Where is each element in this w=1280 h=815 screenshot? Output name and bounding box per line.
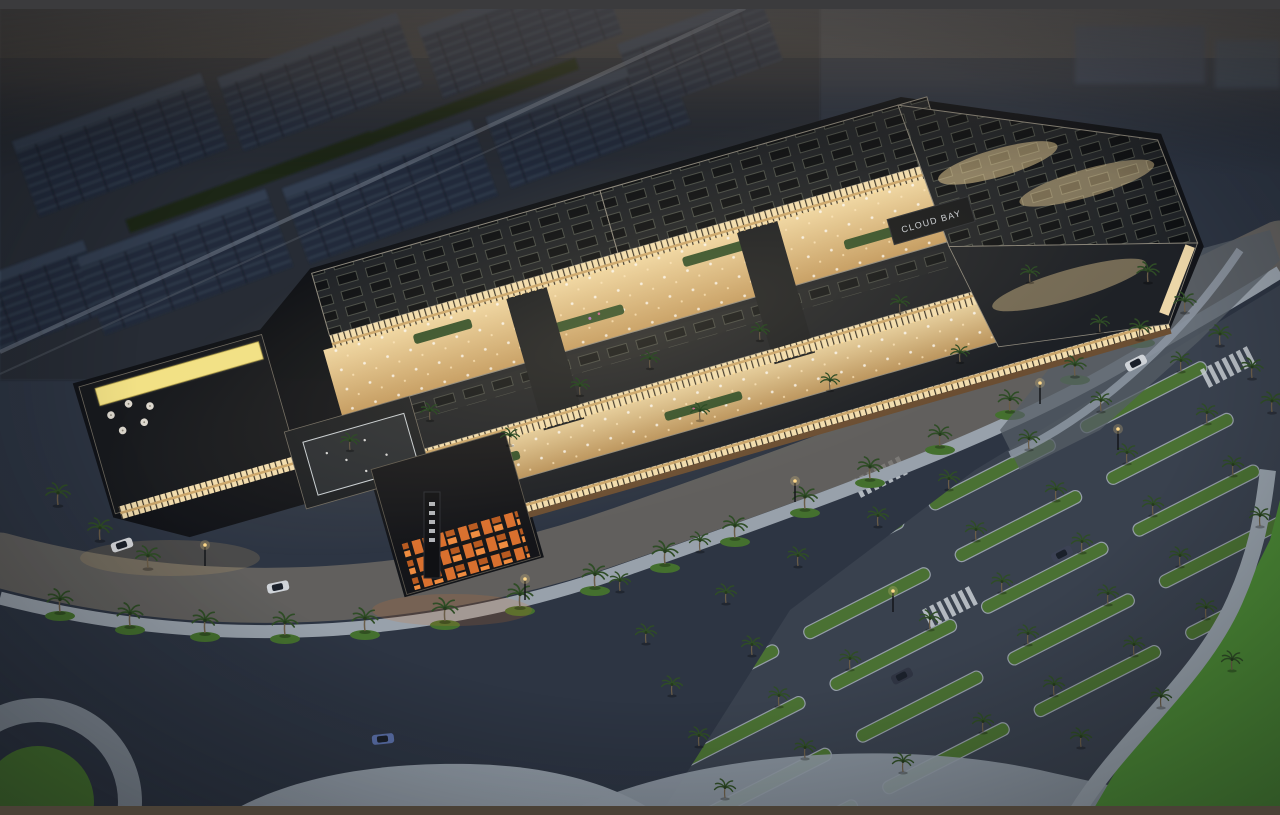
letterbox-top [0, 0, 1280, 9]
aerial-rendering: CLOUD BAY [0, 0, 1280, 815]
letterbox-bottom [0, 806, 1280, 815]
vignette [0, 0, 1280, 815]
